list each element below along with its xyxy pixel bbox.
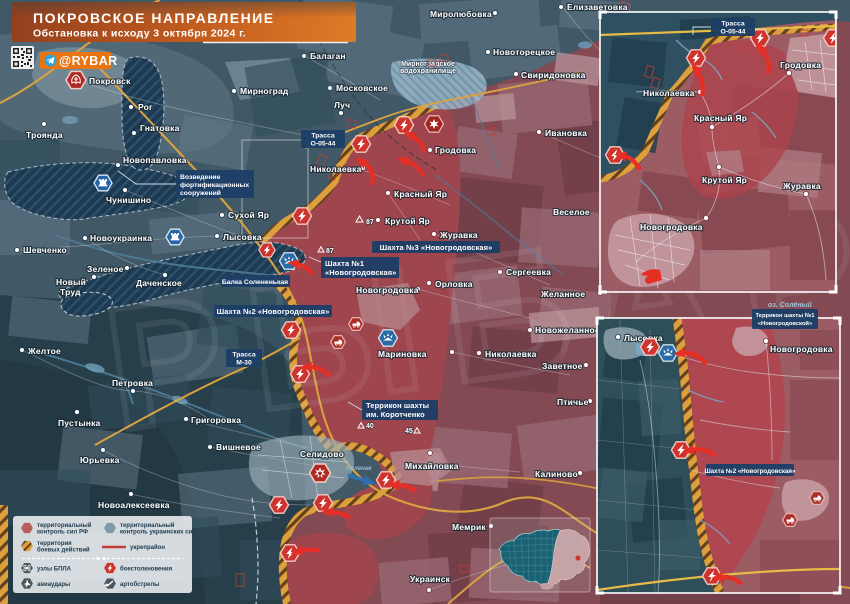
- svg-text:Журавка: Журавка: [782, 181, 821, 191]
- svg-text:Крутой Яр: Крутой Яр: [385, 216, 430, 226]
- svg-text:Новоукраинка: Новоукраинка: [90, 233, 152, 243]
- svg-text:Елизаветовка: Елизаветовка: [567, 2, 628, 12]
- svg-text:Шахта №3 «Новогродовская»: Шахта №3 «Новогродовская»: [380, 243, 493, 252]
- svg-text:им. Коротченко: им. Коротченко: [366, 410, 425, 419]
- svg-text:узлы БПЛА: узлы БПЛА: [37, 567, 72, 573]
- svg-text:фортификационных: фортификационных: [180, 182, 249, 189]
- svg-text:Николаевка: Николаевка: [485, 349, 537, 359]
- svg-text:Новопавловка: Новопавловка: [123, 155, 187, 165]
- svg-text:О-05-44: О-05-44: [721, 29, 746, 36]
- svg-text:Балка Солененькая: Балка Солененькая: [222, 279, 288, 286]
- svg-text:Лысовка: Лысовка: [223, 232, 262, 242]
- svg-text:Террикон шахты: Террикон шахты: [366, 401, 429, 410]
- svg-text:боестолкновения: боестолкновения: [120, 566, 173, 573]
- svg-text:Желтое: Желтое: [27, 346, 61, 356]
- svg-text:Николаевка: Николаевка: [310, 164, 362, 174]
- svg-text:территориальный: территориальный: [37, 522, 92, 529]
- svg-text:Трасса: Трасса: [721, 21, 744, 28]
- svg-text:Солёная: Солёная: [346, 466, 372, 472]
- svg-text:контроль украинских сил: контроль украинских сил: [120, 530, 196, 536]
- svg-text:«Новогродовской»: «Новогродовской»: [758, 320, 812, 327]
- svg-text:Балаган: Балаган: [310, 51, 346, 61]
- svg-text:Зеленое: Зеленое: [87, 264, 124, 274]
- svg-text:Шахта №2 «Новогродовская»: Шахта №2 «Новогродовская»: [217, 307, 330, 316]
- svg-text:87: 87: [326, 248, 334, 255]
- svg-text:40: 40: [366, 423, 374, 430]
- svg-text:Обстановка к исходу 3 октября: Обстановка к исходу 3 октября 2024 г.: [33, 28, 246, 40]
- svg-text:территория: территория: [37, 541, 72, 547]
- svg-text:Новожеланное: Новожеланное: [535, 325, 600, 335]
- svg-text:Шахта №2 «Новогродовская»: Шахта №2 «Новогродовская»: [705, 468, 797, 475]
- svg-text:Гродовка: Гродовка: [435, 145, 476, 155]
- svg-text:М-30: М-30: [236, 360, 252, 367]
- svg-text:Трасса: Трасса: [232, 352, 255, 359]
- svg-text:Труд: Труд: [60, 287, 81, 297]
- svg-text:Михайловка: Михайловка: [405, 461, 459, 471]
- svg-text:Новогродовка: Новогродовка: [770, 344, 833, 354]
- svg-text:Гнатовка: Гнатовка: [140, 123, 180, 133]
- svg-text:Орловка: Орловка: [435, 279, 473, 289]
- svg-text:Трасса: Трасса: [311, 133, 334, 140]
- svg-text:Миролюбовка: Миролюбовка: [430, 9, 492, 19]
- svg-text:Чунишино: Чунишино: [106, 195, 151, 205]
- svg-text:87: 87: [366, 219, 374, 226]
- svg-text:Птичье: Птичье: [557, 397, 589, 407]
- svg-text:Калиново: Калиново: [535, 469, 578, 479]
- svg-text:Новогродовка: Новогродовка: [640, 222, 703, 232]
- svg-text:Журавка: Журавка: [439, 230, 478, 240]
- svg-text:Шахта №1: Шахта №1: [325, 259, 364, 268]
- svg-text:Селидово: Селидово: [300, 449, 344, 459]
- svg-text:территориальный: территориальный: [120, 522, 175, 529]
- svg-text:Новогродовка: Новогродовка: [356, 285, 419, 295]
- svg-text:Петровка: Петровка: [112, 378, 153, 388]
- svg-text:Даченское: Даченское: [136, 278, 182, 288]
- svg-text:Заветное: Заветное: [542, 361, 583, 371]
- svg-text:Юрьевка: Юрьевка: [80, 455, 120, 465]
- svg-text:сооружений: сооружений: [180, 189, 221, 197]
- svg-text:Ивановка: Ивановка: [545, 128, 587, 138]
- svg-text:Луч: Луч: [334, 100, 350, 110]
- svg-text:авиаудары: авиаудары: [37, 582, 70, 588]
- svg-text:О-05-44: О-05-44: [311, 141, 336, 148]
- svg-text:«Новогродовская»: «Новогродовская»: [325, 268, 396, 277]
- svg-text:Николаевка: Николаевка: [643, 88, 695, 98]
- svg-text:Шевченко: Шевченко: [23, 245, 67, 255]
- svg-text:Мариновка: Мариновка: [378, 349, 427, 359]
- svg-text:Мирноград: Мирноград: [240, 86, 289, 96]
- svg-text:Новоалексеевка: Новоалексеевка: [98, 500, 170, 510]
- svg-text:Украинск: Украинск: [410, 574, 451, 584]
- svg-text:@RYBAR: @RYBAR: [59, 54, 118, 68]
- svg-text:Крутой Яр: Крутой Яр: [702, 175, 747, 185]
- svg-text:Московское: Московское: [336, 83, 388, 93]
- svg-text:ПОКРОВСКОЕ НАПРАВЛЕНИЕ: ПОКРОВСКОЕ НАПРАВЛЕНИЕ: [33, 10, 275, 26]
- svg-text:Новый: Новый: [56, 277, 86, 287]
- svg-text:Мемрик: Мемрик: [452, 522, 486, 532]
- svg-text:Сергеевка: Сергеевка: [506, 267, 551, 277]
- svg-text:Троянда: Троянда: [26, 130, 63, 140]
- svg-text:Пустынка: Пустынка: [58, 418, 101, 428]
- svg-text:оз. Солёный: оз. Солёный: [768, 301, 813, 309]
- svg-text:45: 45: [405, 428, 413, 435]
- svg-text:Террикон шахты №1: Террикон шахты №1: [756, 313, 816, 319]
- svg-text:Красный Яр: Красный Яр: [394, 189, 447, 199]
- svg-text:Вишневое: Вишневое: [216, 442, 261, 452]
- svg-text:Новоторецкое: Новоторецкое: [493, 47, 555, 57]
- svg-text:укрепрайон: укрепрайон: [130, 544, 165, 551]
- svg-text:Красный Яр: Красный Яр: [694, 113, 747, 123]
- svg-text:Желанное: Желанное: [540, 289, 585, 299]
- svg-text:Рог: Рог: [138, 102, 153, 112]
- svg-text:Свиридоновка: Свиридоновка: [521, 70, 586, 80]
- svg-text:боевых действий: боевых действий: [37, 547, 90, 554]
- svg-text:контроль сил РФ: контроль сил РФ: [37, 530, 88, 536]
- svg-text:Сухой Яр: Сухой Яр: [228, 210, 269, 220]
- svg-text:Возведение: Возведение: [180, 174, 221, 181]
- svg-text:водохранилище: водохранилище: [400, 68, 456, 75]
- svg-text:Гродовка: Гродовка: [780, 60, 821, 70]
- svg-text:Покровск: Покровск: [89, 76, 131, 86]
- svg-text:артобстрелы: артобстрелы: [120, 581, 159, 588]
- svg-text:Веселое: Веселое: [553, 207, 590, 217]
- svg-text:Григоровка: Григоровка: [191, 415, 241, 425]
